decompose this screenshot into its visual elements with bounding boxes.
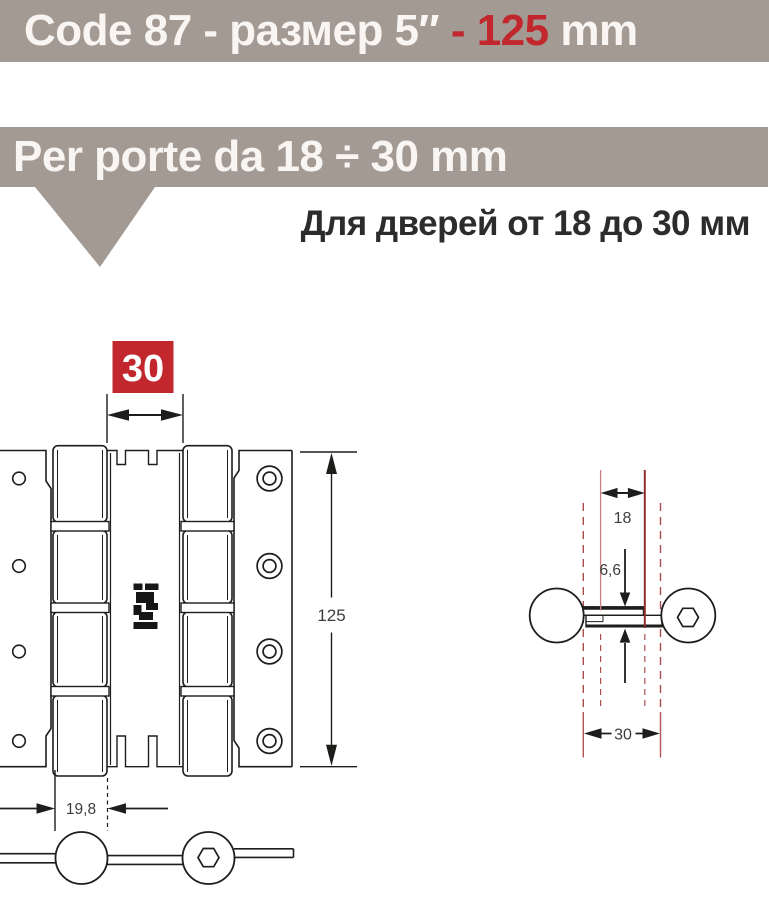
- left-plate-holes: [13, 472, 26, 747]
- technical-drawing-svg: 30: [0, 330, 769, 897]
- dim-gap-label: 30: [122, 348, 164, 390]
- header-title-text: Code 87 - размер 5″: [24, 6, 439, 55]
- left-spring-barrel: [51, 446, 109, 776]
- center-leaf-edge: [107, 856, 183, 865]
- right-leaf-edge: [234, 849, 294, 858]
- center-leaf-top-edge: [107, 451, 183, 465]
- dim-door-min-18: 18: [601, 488, 645, 527]
- dim-gap-30: 30: [107, 341, 183, 443]
- pointer-chevron: [0, 187, 200, 272]
- right-plate-screw-holes: [257, 466, 282, 753]
- left-plate-outline: [0, 451, 51, 767]
- arrowhead-left: [107, 409, 129, 421]
- dim-height-125: 125: [300, 452, 357, 767]
- door-section-view: 18 6,6 30: [530, 470, 716, 758]
- arrowhead-left: [108, 803, 127, 813]
- arrowhead-right: [37, 803, 56, 813]
- arrowhead-left: [584, 728, 602, 738]
- arrowhead-down: [326, 745, 337, 766]
- brand-logo-mark: [134, 584, 159, 630]
- center-leaf-side-lines: [111, 453, 180, 765]
- arrowhead-right: [643, 728, 661, 738]
- hinge-top-view: [0, 832, 294, 884]
- dim-knuckle-label: 19,8: [66, 801, 96, 818]
- header-bar: Code 87 - размер 5″ - 125 mm: [0, 0, 769, 62]
- door-min-dashed-below: [601, 634, 645, 707]
- arrowhead-right: [628, 488, 645, 498]
- dim-door-max-label: 30: [614, 727, 632, 744]
- center-leaf-bottom-edge: [107, 736, 183, 767]
- left-leaf-edge: [0, 854, 56, 863]
- section-leaves: [583, 607, 662, 627]
- left-barrel-circle: [530, 589, 584, 643]
- arrowhead-left: [601, 488, 618, 498]
- header-title: Code 87 - размер 5″ - 125 mm: [24, 6, 638, 56]
- dim-plate-label: 6,6: [599, 562, 621, 579]
- left-barrel-circle: [56, 832, 108, 884]
- right-spring-barrel: [181, 446, 234, 776]
- hinge-front-view: 30: [0, 341, 357, 831]
- hex-nut: [678, 608, 699, 626]
- chevron-shape: [35, 187, 155, 267]
- russian-note: Для дверей от 18 до 30 мм: [301, 204, 750, 244]
- arrowhead-up: [620, 629, 631, 643]
- dim-height-label: 125: [317, 606, 345, 625]
- subtitle-bar: Per porte da 18 ÷ 30 mm: [0, 127, 768, 187]
- dim-knuckle-19-8: 19,8: [0, 770, 168, 831]
- arrowhead-down: [620, 593, 631, 607]
- right-plate-outline: [234, 451, 292, 767]
- header-size-accent: - 125: [439, 6, 549, 55]
- dim-door-max-30: 30: [584, 727, 660, 744]
- arrowhead-up: [326, 453, 337, 474]
- header-title-unit: mm: [549, 6, 638, 55]
- arrowhead-right: [161, 409, 183, 421]
- dim-door-min-label: 18: [614, 510, 632, 527]
- hex-nut: [198, 849, 219, 867]
- subtitle-label: Per porte da 18 ÷ 30 mm: [13, 132, 507, 182]
